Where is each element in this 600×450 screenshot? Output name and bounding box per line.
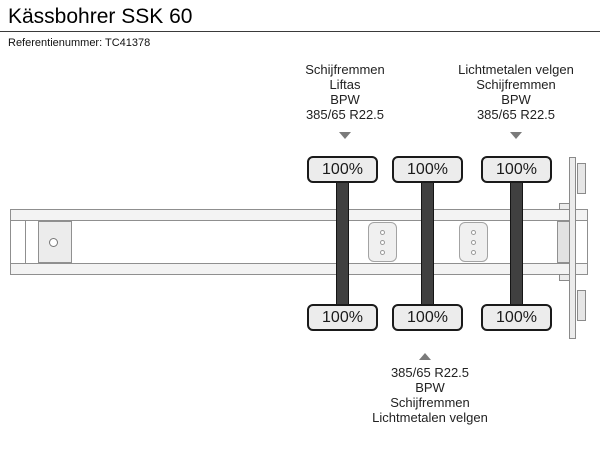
front-crossmember-line xyxy=(25,221,26,263)
arrow-down-icon xyxy=(339,132,351,139)
tire-axle3-left: 100% xyxy=(481,156,552,183)
front-axle-annotation: Schijfremmen Liftas BPW 385/65 R22.5 xyxy=(245,62,445,122)
middle-axle-annotation: 385/65 R22.5 BPW Schijfremmen Lichtmetal… xyxy=(330,365,530,425)
tire-axle3-right: 100% xyxy=(481,304,552,331)
rear-marker-board xyxy=(577,163,586,194)
annotation-line: 385/65 R22.5 xyxy=(330,365,530,380)
rivet-hole-icon xyxy=(471,230,476,235)
tire-axle2-right: 100% xyxy=(392,304,463,331)
arrow-up-icon xyxy=(419,353,431,360)
trailer-diagram-page: Kässbohrer SSK 60 Referentienummer: TC41… xyxy=(0,0,600,450)
annotation-line: BPW xyxy=(245,92,445,107)
tire-axle1-left: 100% xyxy=(307,156,378,183)
rear-marker-board xyxy=(577,290,586,321)
rivet-hole-icon xyxy=(471,250,476,255)
axle-1-bar xyxy=(336,168,349,320)
annotation-line: 385/65 R22.5 xyxy=(416,107,600,122)
tire-axle2-left: 100% xyxy=(392,156,463,183)
rivet-hole-icon xyxy=(471,240,476,245)
crossmember-plate xyxy=(368,222,397,262)
frame-right-rail xyxy=(10,263,588,275)
title-divider xyxy=(0,31,600,32)
crossmember-plate xyxy=(459,222,488,262)
annotation-line: Schijfremmen xyxy=(245,62,445,77)
annotation-line: Lichtmetalen velgen xyxy=(416,62,600,77)
rivet-hole-icon xyxy=(380,250,385,255)
rear-bumper-bar xyxy=(569,157,576,339)
page-title: Kässbohrer SSK 60 xyxy=(8,5,192,29)
rivet-hole-icon xyxy=(380,240,385,245)
annotation-line: Lichtmetalen velgen xyxy=(330,410,530,425)
frame-left-rail xyxy=(10,209,588,221)
annotation-line: Liftas xyxy=(245,77,445,92)
kingpin-icon xyxy=(49,238,58,247)
annotation-line: 385/65 R22.5 xyxy=(245,107,445,122)
annotation-line: Schijfremmen xyxy=(330,395,530,410)
rear-axle-annotation: Lichtmetalen velgen Schijfremmen BPW 385… xyxy=(416,62,600,122)
arrow-down-icon xyxy=(510,132,522,139)
tire-axle1-right: 100% xyxy=(307,304,378,331)
axle-3-bar xyxy=(510,168,523,320)
annotation-line: BPW xyxy=(416,92,600,107)
axle-2-bar xyxy=(421,168,434,320)
reference-number: Referentienummer: TC41378 xyxy=(8,37,150,49)
annotation-line: Schijfremmen xyxy=(416,77,600,92)
annotation-line: BPW xyxy=(330,380,530,395)
rivet-hole-icon xyxy=(380,230,385,235)
